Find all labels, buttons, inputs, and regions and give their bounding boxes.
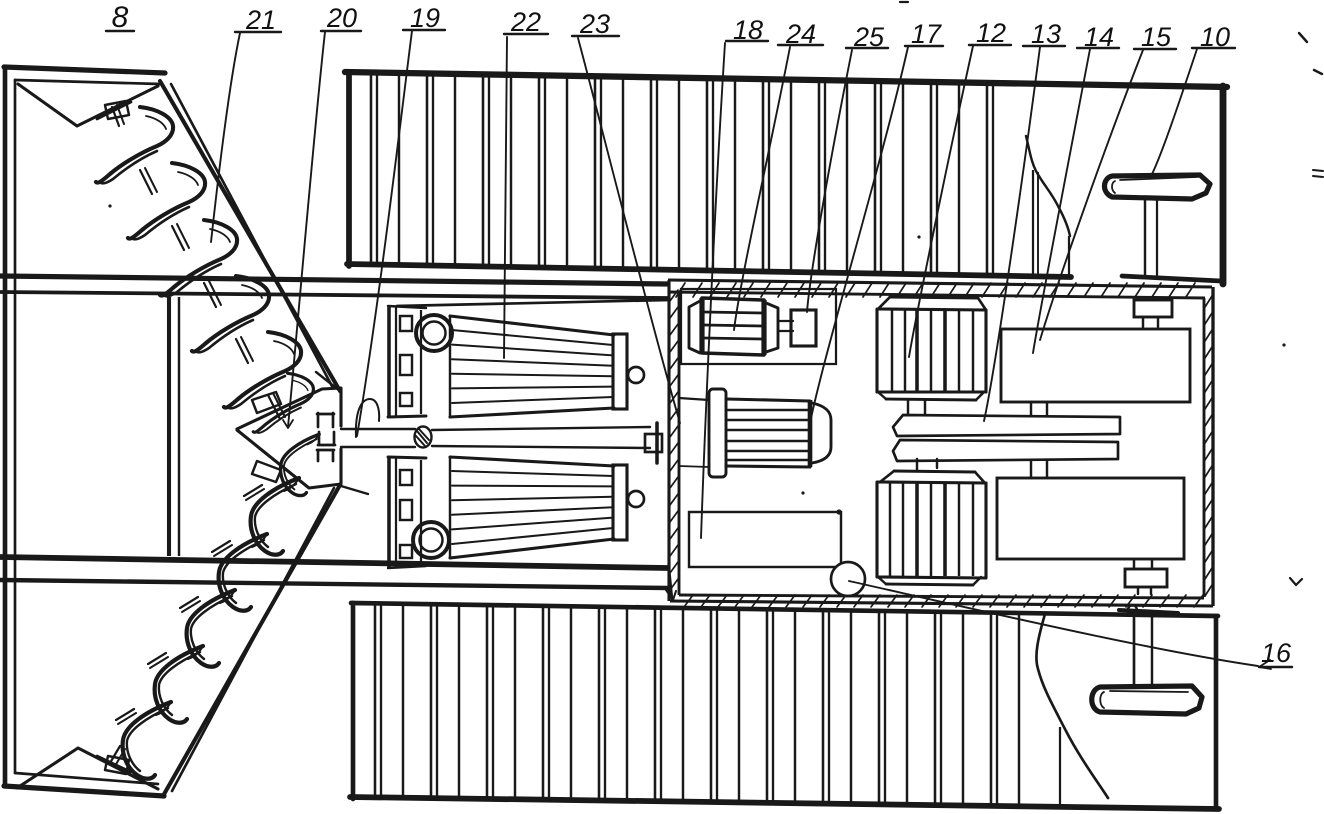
svg-text:20: 20	[326, 3, 357, 33]
svg-text:23: 23	[579, 9, 610, 39]
svg-text:15: 15	[1141, 22, 1172, 52]
svg-text:12: 12	[976, 18, 1006, 48]
svg-text:22: 22	[510, 7, 541, 37]
svg-text:8: 8	[112, 1, 129, 34]
svg-text:16: 16	[1261, 638, 1292, 668]
svg-text:21: 21	[245, 5, 276, 35]
svg-text:17: 17	[911, 19, 942, 49]
svg-text:19: 19	[410, 3, 440, 33]
svg-text:13: 13	[1031, 19, 1061, 49]
